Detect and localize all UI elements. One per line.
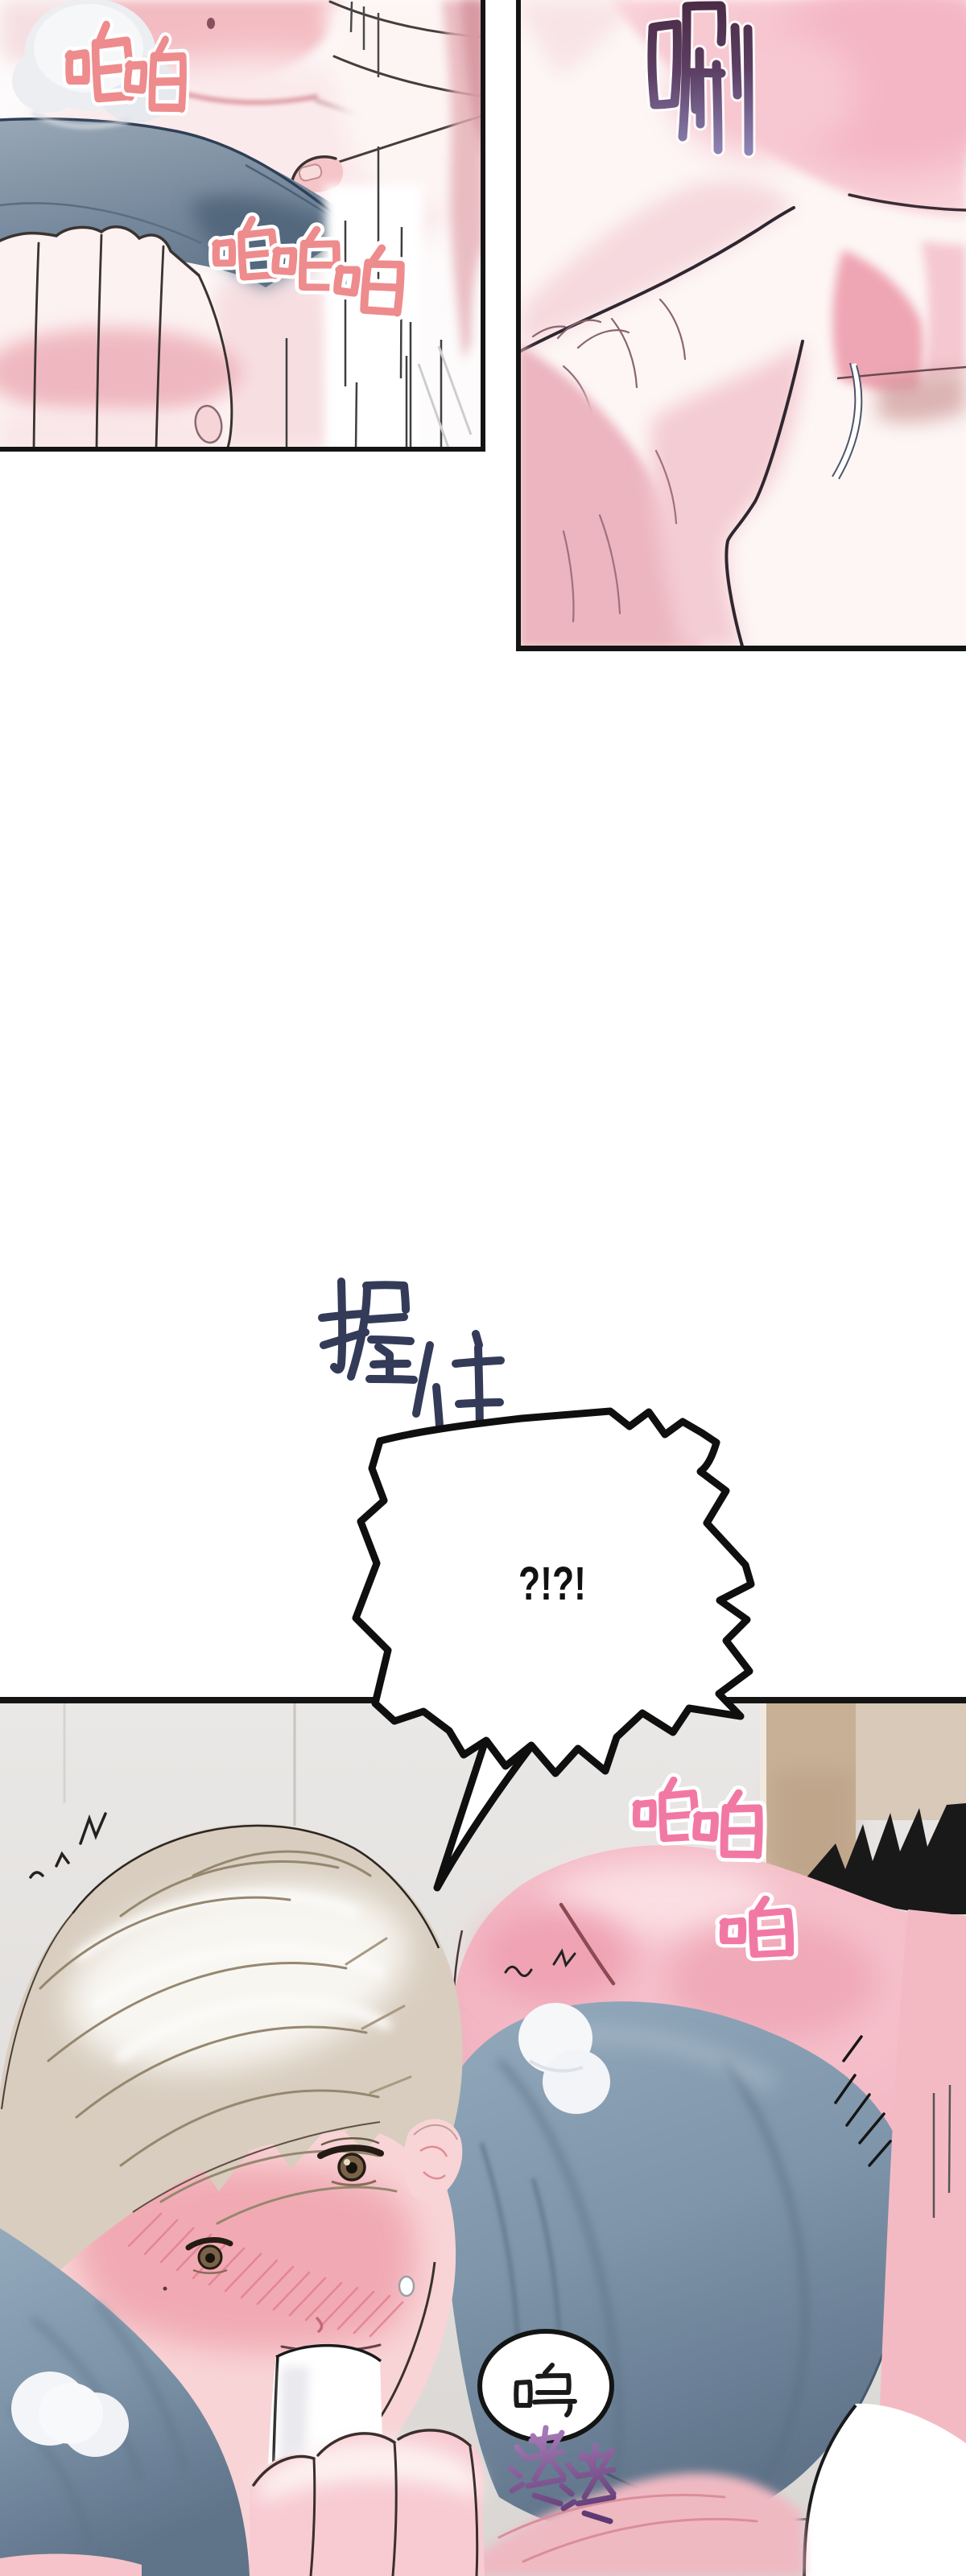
svg-text:?!?!: ?!?! [518, 1558, 586, 1610]
